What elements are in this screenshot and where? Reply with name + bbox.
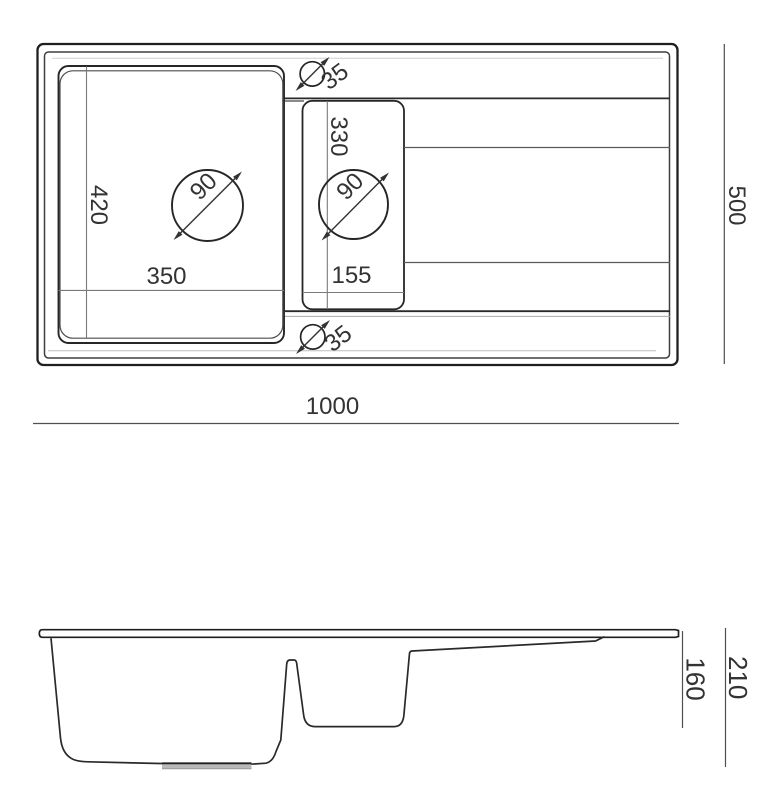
svg-text:350: 350	[146, 263, 186, 290]
svg-text:420: 420	[85, 185, 112, 225]
svg-text:35: 35	[316, 58, 354, 96]
svg-text:210: 210	[723, 656, 753, 699]
svg-text:160: 160	[680, 657, 710, 700]
svg-text:1000: 1000	[306, 393, 359, 420]
svg-text:500: 500	[723, 185, 750, 225]
svg-text:330: 330	[325, 116, 352, 156]
svg-text:155: 155	[331, 262, 371, 289]
